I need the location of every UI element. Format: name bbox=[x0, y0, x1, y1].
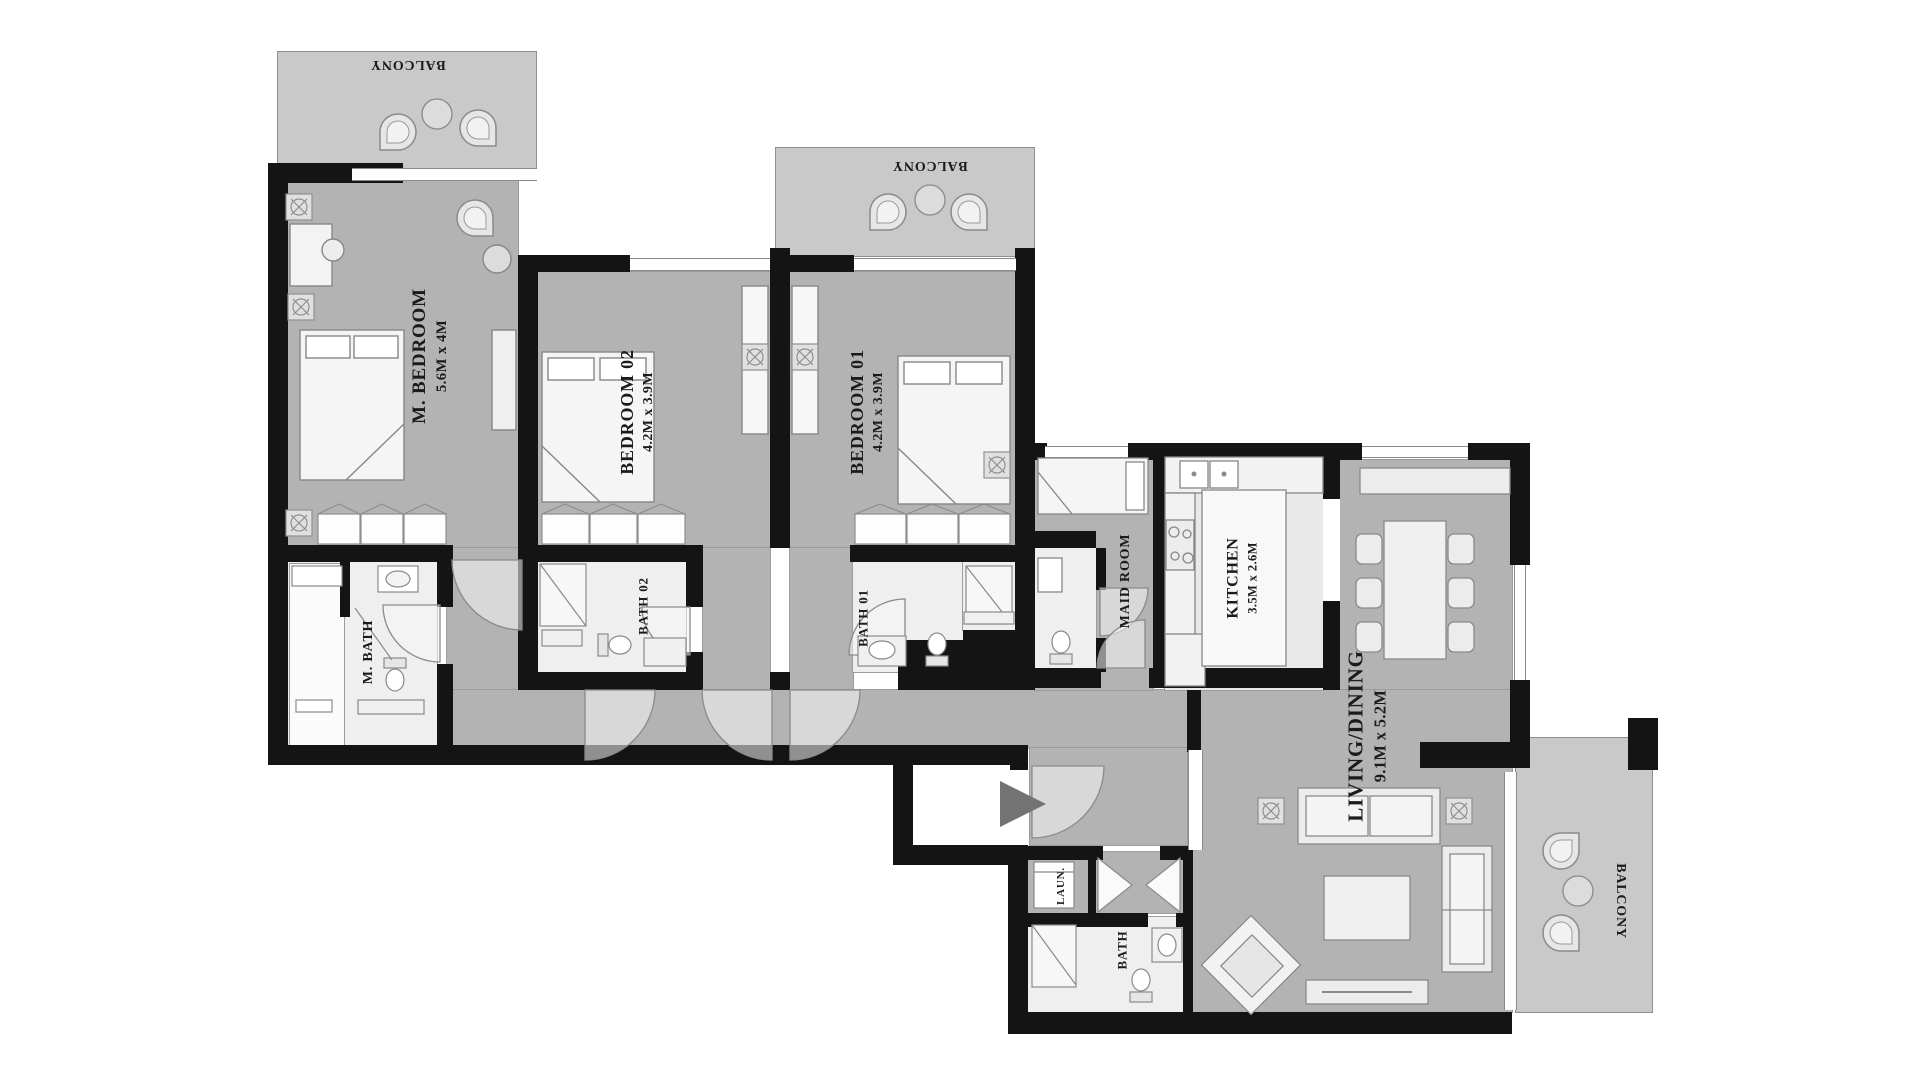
balcony-table bbox=[915, 185, 945, 215]
dining-chair bbox=[1448, 622, 1474, 652]
label-master-bedroom: M. BEDROOM 5.6M x 4M bbox=[408, 288, 452, 424]
door-entry bbox=[1032, 766, 1104, 838]
symbol-icon bbox=[742, 344, 768, 370]
pillow bbox=[904, 362, 950, 384]
sideboard bbox=[1360, 468, 1510, 494]
closet-shelf bbox=[296, 700, 332, 712]
room-name: M. BATH bbox=[361, 620, 376, 684]
label-laundry: LAUN. bbox=[1054, 867, 1068, 905]
dining-furniture bbox=[1356, 468, 1510, 659]
wardrobe-master bbox=[318, 504, 446, 544]
room-name: BEDROOM 02 bbox=[617, 349, 637, 475]
wardrobe-bedroom-01 bbox=[855, 504, 1010, 544]
symbol-icon bbox=[792, 344, 818, 370]
room-name: BALCONY bbox=[1613, 863, 1628, 939]
label-bedroom-02: BEDROOM 02 4.2M x 3.9M bbox=[616, 349, 658, 475]
label-maid-room: MAID ROOM bbox=[1117, 534, 1135, 629]
living-furniture bbox=[1202, 788, 1492, 1014]
bench bbox=[964, 612, 1014, 624]
toilet bbox=[1050, 631, 1072, 664]
label-master-bath: M. BATH bbox=[360, 620, 378, 684]
label-kitchen: KITCHEN 3.5M x 2.6M bbox=[1223, 537, 1260, 618]
room-dims: 5.6M x 4M bbox=[433, 288, 452, 424]
armchair bbox=[457, 200, 493, 236]
sink-bowl bbox=[1158, 934, 1176, 956]
room-name: BALCONY bbox=[370, 57, 446, 72]
master-bedroom-furniture bbox=[286, 194, 516, 536]
door-corridor bbox=[585, 690, 655, 760]
door-bedroom-01 bbox=[790, 690, 860, 760]
fridge bbox=[1165, 634, 1205, 686]
dining-chair bbox=[1448, 534, 1474, 564]
room-name: LAUN. bbox=[1055, 867, 1067, 905]
label-bath-02: BATH 02 bbox=[636, 577, 653, 635]
room-dims: 9.1M x 5.2M bbox=[1370, 650, 1391, 821]
pillow bbox=[548, 358, 594, 380]
room-dims: 3.5M x 2.6M bbox=[1244, 537, 1260, 618]
desk bbox=[492, 330, 516, 430]
symbol-icon bbox=[1258, 798, 1284, 824]
dining-table bbox=[1384, 521, 1446, 659]
pillow bbox=[956, 362, 1002, 384]
dresser-stool bbox=[322, 239, 344, 261]
toilet bbox=[598, 634, 631, 656]
balcony-table bbox=[422, 99, 452, 129]
room-name: BATH 01 bbox=[856, 589, 871, 647]
room-name: LIVING/DINING bbox=[1344, 650, 1368, 821]
dining-chair bbox=[1356, 578, 1382, 608]
dining-chair bbox=[1356, 534, 1382, 564]
pillow bbox=[1126, 462, 1144, 510]
sink bbox=[542, 630, 582, 646]
closet-shelf bbox=[292, 566, 342, 586]
toilet bbox=[1130, 969, 1152, 1002]
door-arcs bbox=[383, 560, 1148, 838]
balcony-chair bbox=[380, 114, 416, 150]
vanity bbox=[644, 638, 686, 666]
floor-plan: BALCONY M. BEDROOM 5.6M x 4M BEDROOM 02 … bbox=[0, 0, 1920, 1080]
label-balcony-top-left: BALCONY bbox=[370, 55, 446, 73]
toilet bbox=[384, 658, 406, 691]
pillow bbox=[306, 336, 350, 358]
label-balcony-right: BALCONY bbox=[1611, 863, 1629, 939]
room-name: BATH 02 bbox=[636, 577, 651, 635]
symbol-icon bbox=[984, 452, 1010, 478]
room-name: KITCHEN bbox=[1224, 537, 1241, 618]
sink-bowl bbox=[869, 641, 895, 659]
dining-chair bbox=[1356, 622, 1382, 652]
coffee-table bbox=[1324, 876, 1410, 940]
room-name: BEDROOM 01 bbox=[847, 349, 867, 475]
balcony-chair bbox=[460, 110, 496, 146]
symbol-icon bbox=[1446, 798, 1472, 824]
bath-door bbox=[1146, 858, 1180, 912]
dining-chair bbox=[1448, 578, 1474, 608]
laundry-door bbox=[1098, 858, 1132, 912]
balcony-chair bbox=[951, 194, 987, 230]
sink-bowl bbox=[386, 571, 410, 587]
label-balcony-top-middle: BALCONY bbox=[892, 156, 968, 174]
toilet bbox=[926, 633, 948, 666]
balcony-chair bbox=[1543, 915, 1579, 951]
symbol-icon bbox=[286, 510, 312, 536]
door-master-bath bbox=[383, 605, 440, 662]
sink bbox=[1038, 558, 1062, 592]
vanity bbox=[358, 700, 424, 714]
bedroom-01-furniture bbox=[792, 286, 1010, 504]
balcony-table bbox=[1563, 876, 1593, 906]
door-bedroom-02 bbox=[702, 690, 772, 760]
wardrobe-bedroom-02 bbox=[542, 504, 685, 544]
label-bath-01: BATH 01 bbox=[856, 589, 873, 647]
door-master-bedroom bbox=[452, 560, 522, 630]
room-name: M. BEDROOM bbox=[409, 288, 430, 424]
room-name: BATH bbox=[1115, 930, 1130, 969]
label-living-dining: LIVING/DINING 9.1M x 5.2M bbox=[1343, 650, 1392, 821]
label-bath: BATH bbox=[1115, 930, 1132, 969]
symbol-icon bbox=[288, 294, 314, 320]
room-name: BALCONY bbox=[892, 158, 968, 173]
symbol-icon bbox=[286, 194, 312, 220]
wardrobes bbox=[318, 504, 1010, 544]
label-bedroom-01: BEDROOM 01 4.2M x 3.9M bbox=[846, 349, 888, 475]
side-table bbox=[483, 245, 511, 273]
balcony-chair bbox=[1543, 833, 1579, 869]
room-dims: 4.2M x 3.9M bbox=[640, 349, 658, 475]
balcony-chair bbox=[870, 194, 906, 230]
room-name: MAID ROOM bbox=[1118, 534, 1133, 629]
chaise-cushion bbox=[1450, 854, 1484, 964]
room-dims: 4.2M x 3.9M bbox=[870, 349, 888, 475]
pillow bbox=[354, 336, 398, 358]
